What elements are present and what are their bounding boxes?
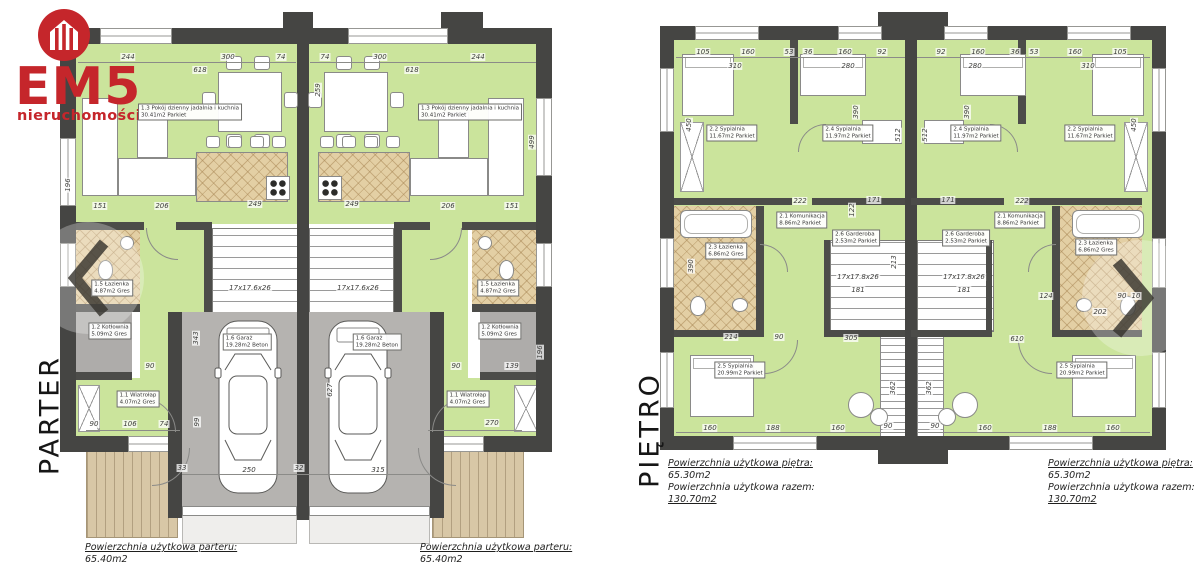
window <box>944 26 988 40</box>
wall-int-9 <box>76 372 132 380</box>
room-label: 1.3 Pokój dzienny jadalnia i kuchnia30.4… <box>418 104 522 121</box>
dining-table <box>324 72 388 132</box>
dimension-label: 202 <box>1092 308 1107 316</box>
wall-party-2 <box>905 26 917 450</box>
stove <box>266 176 290 200</box>
dimension-label: 390 <box>687 258 695 273</box>
wall-right <box>536 28 552 452</box>
bar-stool <box>364 136 378 148</box>
dimension-label: 305 <box>843 334 858 342</box>
shaft-right <box>514 385 538 432</box>
dimension-label: 90 <box>1117 292 1128 300</box>
window <box>1152 352 1166 408</box>
bed <box>682 54 734 116</box>
dimension-label: 105 <box>695 48 710 56</box>
chair <box>336 56 352 70</box>
chair <box>284 92 298 108</box>
dimension-label: 53 <box>1029 48 1040 56</box>
floor-label-pietro: PIĘTRO <box>635 372 666 488</box>
dimension-label: 618 <box>192 66 207 74</box>
dimension-label: 160 <box>970 48 985 56</box>
dimension-label: 160 <box>740 48 755 56</box>
dimension-label: 160 <box>830 424 845 432</box>
driveway-right <box>309 516 430 544</box>
dimension-label: 512 <box>894 127 902 142</box>
bar-stool <box>386 136 400 148</box>
prev-arrow-halo <box>32 222 144 334</box>
dimension-label: 17x17.8x26 <box>942 273 986 281</box>
area-note: Powierzchnia użytkowa piętra:65.30m2Powi… <box>1048 458 1195 506</box>
dimension-label: 627 <box>326 382 334 397</box>
dimension-label: 139 <box>504 362 519 370</box>
dimension-label: 310 <box>727 62 742 70</box>
chimney-bottom <box>878 448 948 464</box>
dimension-label: 310 <box>1080 62 1095 70</box>
dimension-line <box>182 474 430 475</box>
dimension-label: 74 <box>320 53 331 61</box>
dimension-label: 244 <box>470 53 485 61</box>
dimension-label: 618 <box>404 66 419 74</box>
dimension-label: 171 <box>866 196 881 204</box>
dimension-label: 206 <box>154 202 169 210</box>
dimension-label: 181 <box>850 286 865 294</box>
wall-int-10 <box>480 372 536 380</box>
logo-subtitle-text: nieruchomości <box>17 108 141 124</box>
room-label: 2.6 Garderoba2.53m2 Parkiet <box>942 230 990 247</box>
dimension-label: 160 <box>977 424 992 432</box>
room-label: 1.5 Łazienka4.87m2 Gres <box>91 280 133 297</box>
dimension-label: 362 <box>889 380 897 395</box>
room-label: 2.6 Garderoba2.53m2 Parkiet <box>832 230 880 247</box>
room-label: 1.1 Wiatrołap4.07m2 Gres <box>447 391 490 408</box>
driveway-left <box>182 516 297 544</box>
dimension-label: 124 <box>1038 292 1053 300</box>
wall-int-24 <box>911 330 992 337</box>
dimension-label: 214 <box>723 333 738 341</box>
dimension-label: 90 <box>145 362 156 370</box>
room-label: 2.3 Łazienka6.86m2 Gres <box>1075 239 1117 256</box>
chair <box>390 92 404 108</box>
bar-stool <box>228 136 242 148</box>
dimension-label: 300 <box>372 53 387 61</box>
dimension-label: 17x17.8x26 <box>836 273 880 281</box>
wall-int-5 <box>204 228 212 312</box>
toilet <box>690 296 706 316</box>
area-note: Powierzchnia użytkowa parteru:65.40m2 <box>420 542 572 566</box>
dimension-label: 90 <box>883 422 894 430</box>
dimension-label: 171 <box>940 196 955 204</box>
window <box>1152 68 1166 132</box>
chair <box>254 56 270 70</box>
dimension-label: 92 <box>936 48 947 56</box>
dimension-label: 36 <box>803 48 814 56</box>
area-note: Powierzchnia użytkowa parteru:65.40m2 <box>85 542 237 566</box>
dimension-label: 300 <box>220 53 235 61</box>
dimension-label: 99 <box>193 417 201 428</box>
bathtub <box>1072 210 1144 238</box>
wall-int-15 <box>911 198 1004 205</box>
window <box>1067 26 1131 40</box>
dimension-label: 106 <box>122 420 137 428</box>
bar-stool <box>320 136 334 148</box>
window <box>1009 436 1093 450</box>
dimension-line <box>676 432 905 433</box>
bar-stool <box>342 136 356 148</box>
dimension-label: 499 <box>528 134 536 149</box>
dimension-label: 160 <box>702 424 717 432</box>
dimension-label: 390 <box>963 104 971 119</box>
window <box>695 26 759 40</box>
dimension-label: 74 <box>159 420 170 428</box>
wall-int-22 <box>986 240 992 336</box>
chimney-top-2 <box>441 12 483 28</box>
window-right-2 <box>536 243 552 287</box>
dimension-label: 122 <box>848 202 856 217</box>
room-label: 1.5 Łazienka4.87m2 Gres <box>477 280 519 297</box>
dimension-label: 151 <box>92 202 107 210</box>
bed <box>960 54 1026 96</box>
dimension-label: 222 <box>792 197 807 205</box>
window <box>838 26 882 40</box>
window <box>660 238 674 288</box>
wall-int-19 <box>674 330 764 337</box>
floorplan-gallery-view: PARTER PIĘTRO EM5 nieruchomości 24430074… <box>0 0 1200 574</box>
window-right-1 <box>536 98 552 176</box>
window-left-1 <box>60 138 76 206</box>
dimension-label: 17x17.6x26 <box>228 284 272 292</box>
room-label: 2.2 Sypialnia11.67m2 Parkiet <box>706 125 757 142</box>
room-label: 2.3 Łazienka6.86m2 Gres <box>705 243 747 260</box>
dimension-label: 32 <box>294 464 305 472</box>
dimension-label: 270 <box>484 419 499 427</box>
dimension-line <box>676 57 905 58</box>
dimension-label: 160 <box>1105 424 1120 432</box>
dimension-label: 90 <box>774 333 785 341</box>
room-label: 1.2 Kotłownia5.09m2 Gres <box>478 323 521 340</box>
dimension-label: 450 <box>685 117 693 132</box>
wall-int-8 <box>472 304 536 312</box>
stairs-left-unit <box>212 228 299 314</box>
dimension-label: 188 <box>765 424 780 432</box>
dimension-line <box>428 430 522 431</box>
round-chair <box>952 392 978 418</box>
toilet <box>499 260 514 280</box>
dimension-label: 105 <box>1112 48 1127 56</box>
dimension-label: 181 <box>956 286 971 294</box>
room-label: 2.2 Sypialnia11.67m2 Parkiet <box>1064 125 1115 142</box>
dimension-label: 92 <box>877 48 888 56</box>
dimension-label: 390 <box>852 104 860 119</box>
dimension-label: 222 <box>1014 197 1029 205</box>
window <box>660 68 674 132</box>
logo-brand-text: EM5 <box>15 62 141 112</box>
bed <box>800 54 866 96</box>
room-label: 1.6 Garaż19.28m2 Beton <box>353 334 402 351</box>
dimension-label: 280 <box>967 62 982 70</box>
room-label: 1.6 Garaż19.28m2 Beton <box>223 334 272 351</box>
chimney-top-3 <box>878 12 948 26</box>
bar-stool <box>272 136 286 148</box>
sink <box>732 298 748 312</box>
dimension-label: 250 <box>241 466 256 474</box>
room-label: 2.5 Sypialnia20.99m2 Parkiet <box>1056 362 1107 379</box>
dimension-label: 53 <box>784 48 795 56</box>
dimension-label: 259 <box>314 82 322 97</box>
dimension-label: 610 <box>1009 335 1024 343</box>
dimension-label: 213 <box>890 254 898 269</box>
garage-door-left <box>182 506 297 516</box>
window-top-left <box>100 28 172 44</box>
room-label: 1.2 Kotłownia5.09m2 Gres <box>88 323 131 340</box>
room-label: 1.1 Wiatrołap4.07m2 Gres <box>117 391 160 408</box>
dimension-line <box>310 62 536 63</box>
dimension-label: 90 <box>451 362 462 370</box>
dimension-label: 196 <box>64 177 72 192</box>
dimension-label: 10 <box>1131 292 1142 300</box>
dimension-label: 244 <box>120 53 135 61</box>
sink <box>478 236 492 250</box>
dimension-line <box>917 57 1150 58</box>
room-label: 2.5 Sypialnia20.99m2 Parkiet <box>714 362 765 379</box>
dimension-label: 280 <box>840 62 855 70</box>
window-top-right <box>348 28 448 44</box>
window <box>733 436 817 450</box>
room-label: 2.1 Komunikacja8.86m2 Parkiet <box>994 212 1045 229</box>
wall-int-16 <box>1024 198 1142 205</box>
stove <box>318 176 342 200</box>
dimension-label: 74 <box>276 53 287 61</box>
dimension-label: 90 <box>930 422 941 430</box>
dimension-label: 36 <box>1010 48 1021 56</box>
wall-int-6 <box>394 228 402 312</box>
bed <box>1092 54 1144 116</box>
wall-int-21 <box>824 240 830 336</box>
dimension-label: 249 <box>344 200 359 208</box>
dimension-label: 343 <box>192 330 200 345</box>
bathtub <box>680 210 752 238</box>
bar-stool <box>206 136 220 148</box>
floor-label-parter: PARTER <box>35 355 66 475</box>
dimension-label: 206 <box>440 202 455 210</box>
stairs-right-unit <box>309 228 394 314</box>
dimension-label: 249 <box>247 200 262 208</box>
room-label: 2.1 Komunikacja8.86m2 Parkiet <box>776 212 827 229</box>
dimension-label: 196 <box>536 344 544 359</box>
garage-door-right <box>309 506 430 516</box>
wall-int-4 <box>462 222 536 230</box>
dimension-label: 160 <box>1067 48 1082 56</box>
room-label: 2.4 Sypialnia11.97m2 Parkiet <box>822 125 873 142</box>
dimension-label: 188 <box>1042 424 1057 432</box>
dimension-label: 90 <box>89 420 100 428</box>
dimension-label: 362 <box>925 380 933 395</box>
dining-table <box>218 72 282 132</box>
dimension-label: 33 <box>177 464 188 472</box>
sofa-chaise <box>118 158 196 196</box>
dimension-label: 17x17.6x26 <box>336 284 380 292</box>
room-label: 2.4 Sypialnia11.97m2 Parkiet <box>950 125 1001 142</box>
sofa-chaise <box>410 158 488 196</box>
dimension-label: 151 <box>504 202 519 210</box>
bar-stool <box>250 136 264 148</box>
dimension-label: 315 <box>370 466 385 474</box>
dimension-label: 160 <box>837 48 852 56</box>
dimension-label: 450 <box>1130 117 1138 132</box>
dimension-label: 512 <box>921 127 929 142</box>
wall-int-14 <box>812 198 905 205</box>
house-icon <box>38 8 90 62</box>
dimension-line <box>917 432 1150 433</box>
wall-int-23 <box>824 330 905 337</box>
round-table <box>938 408 956 426</box>
wall-int-13 <box>674 198 792 205</box>
dimension-line <box>86 430 180 431</box>
area-note: Powierzchnia użytkowa piętra:65.30m2Powi… <box>668 458 815 506</box>
room-label: 1.3 Pokój dzienny jadalnia i kuchnia30.4… <box>138 104 242 121</box>
